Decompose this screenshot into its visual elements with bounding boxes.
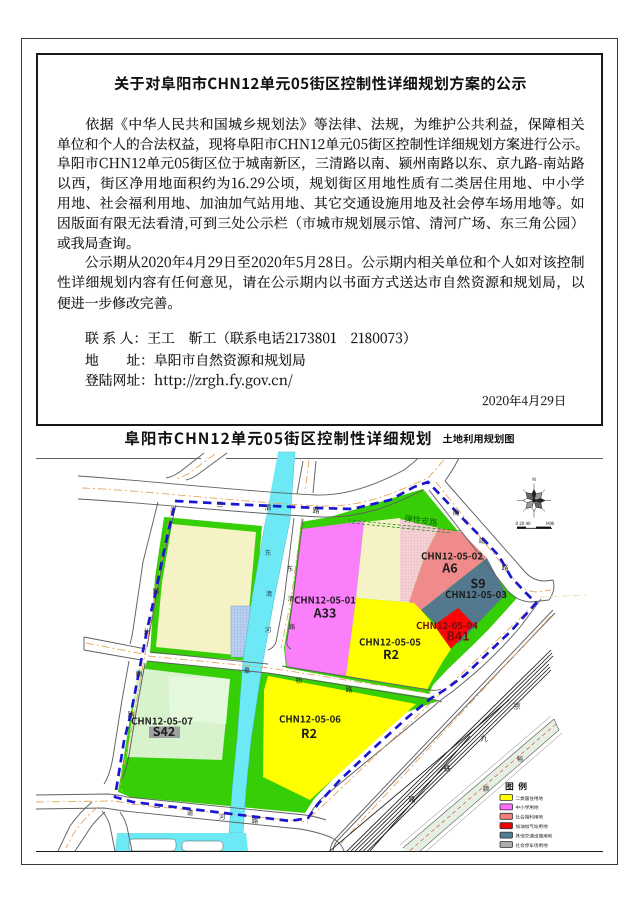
svg-text:河: 河 bbox=[265, 624, 272, 634]
svg-text:R2: R2 bbox=[301, 723, 317, 742]
svg-text:颍: 颍 bbox=[153, 587, 160, 597]
svg-text:道: 道 bbox=[187, 807, 194, 817]
svg-text:京: 京 bbox=[513, 701, 521, 712]
svg-text:R2: R2 bbox=[383, 644, 399, 663]
svg-text:南: 南 bbox=[136, 669, 143, 679]
svg-text:一: 一 bbox=[154, 802, 161, 812]
svg-text:中小学用地: 中小学用地 bbox=[516, 805, 539, 811]
svg-text:裕: 裕 bbox=[517, 753, 524, 763]
svg-text:路: 路 bbox=[502, 563, 509, 573]
svg-text:清: 清 bbox=[288, 593, 295, 603]
svg-text:社会停车场用地: 社会停车场用地 bbox=[516, 843, 549, 849]
svg-text:社会福利用地: 社会福利用地 bbox=[516, 815, 544, 821]
svg-text:路: 路 bbox=[313, 506, 320, 516]
svg-text:B41: B41 bbox=[446, 626, 469, 645]
svg-text:铁: 铁 bbox=[443, 763, 451, 774]
svg-text:路: 路 bbox=[289, 621, 296, 631]
svg-text:A33: A33 bbox=[313, 603, 337, 622]
svg-text:东: 东 bbox=[265, 547, 272, 557]
svg-text:0 20 40: 0 20 40 bbox=[516, 521, 531, 527]
svg-text:路: 路 bbox=[346, 685, 353, 695]
svg-text:九: 九 bbox=[480, 733, 488, 744]
svg-text:颍: 颍 bbox=[483, 783, 490, 793]
svg-text:州: 州 bbox=[144, 627, 151, 637]
svg-text:桥: 桥 bbox=[296, 676, 303, 686]
svg-text:南: 南 bbox=[453, 508, 460, 518]
svg-text:站: 站 bbox=[479, 536, 486, 546]
svg-text:清: 清 bbox=[266, 588, 273, 598]
svg-text:CHN12-05-03: CHN12-05-03 bbox=[445, 587, 507, 601]
svg-text:M米: M米 bbox=[546, 521, 555, 527]
svg-text:阜: 阜 bbox=[244, 666, 251, 676]
svg-text:加油加气站用地: 加油加气站用地 bbox=[516, 824, 549, 830]
svg-text:二类居住用地: 二类居住用地 bbox=[516, 796, 544, 802]
svg-text:N: N bbox=[532, 476, 536, 483]
svg-text:图例: 图例 bbox=[505, 780, 532, 793]
svg-text:东: 东 bbox=[287, 563, 294, 573]
svg-text:路: 路 bbox=[408, 794, 416, 805]
svg-text:A6: A6 bbox=[441, 558, 457, 577]
svg-text:清: 清 bbox=[265, 503, 272, 513]
svg-text:路: 路 bbox=[252, 815, 259, 825]
svg-text:其他交通设施用地: 其他交通设施用地 bbox=[516, 833, 553, 839]
svg-text:河: 河 bbox=[219, 811, 226, 821]
svg-text:三: 三 bbox=[217, 500, 224, 510]
svg-text:路: 路 bbox=[128, 710, 135, 720]
svg-text:S42: S42 bbox=[153, 721, 176, 740]
